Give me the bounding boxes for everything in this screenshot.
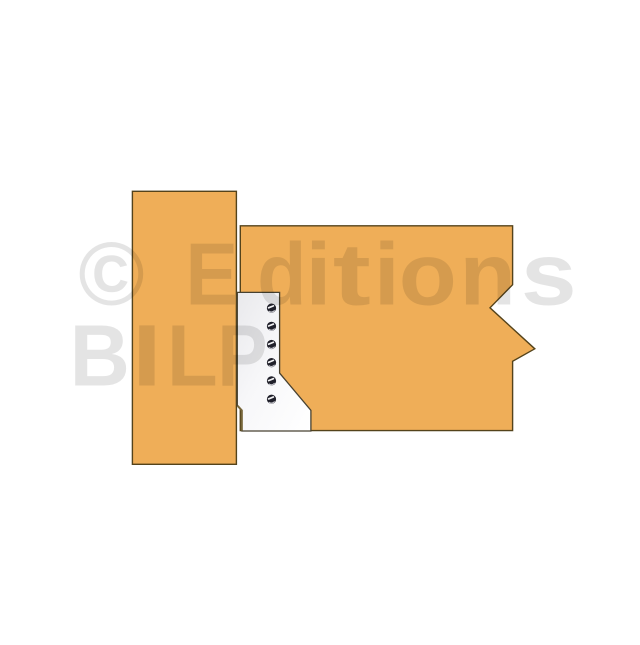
- svg-text:o: o: [399, 226, 457, 324]
- svg-text:I: I: [132, 307, 162, 404]
- svg-text:i: i: [374, 226, 400, 324]
- svg-text:B: B: [70, 308, 130, 405]
- svg-text:n: n: [460, 225, 516, 324]
- svg-text:s: s: [521, 225, 577, 323]
- svg-text:t: t: [333, 225, 371, 323]
- svg-text:P: P: [217, 307, 267, 404]
- svg-text:i: i: [305, 226, 331, 324]
- svg-text:L: L: [167, 308, 218, 405]
